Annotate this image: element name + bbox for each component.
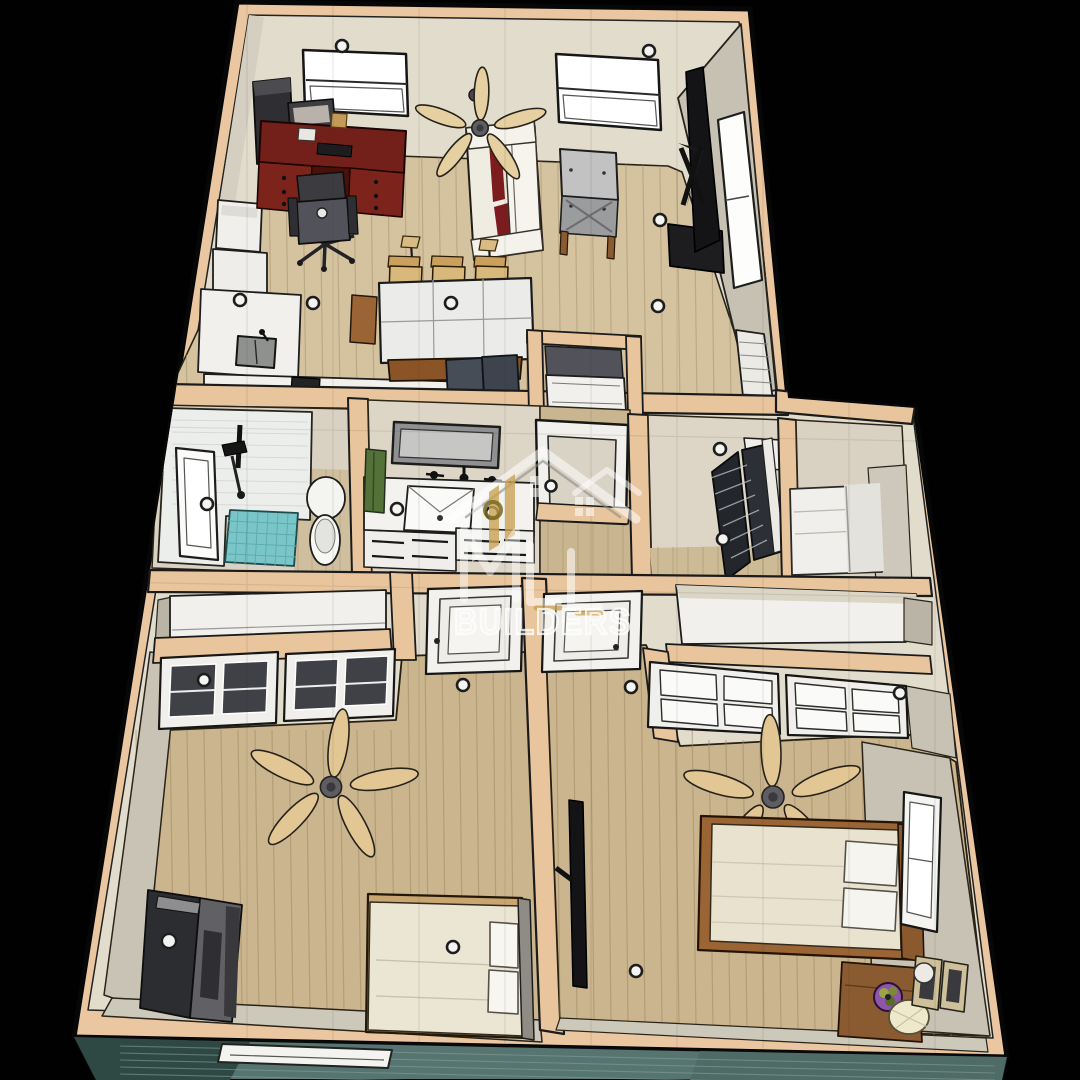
svg-text:BUILDERS: BUILDERS (454, 601, 632, 642)
